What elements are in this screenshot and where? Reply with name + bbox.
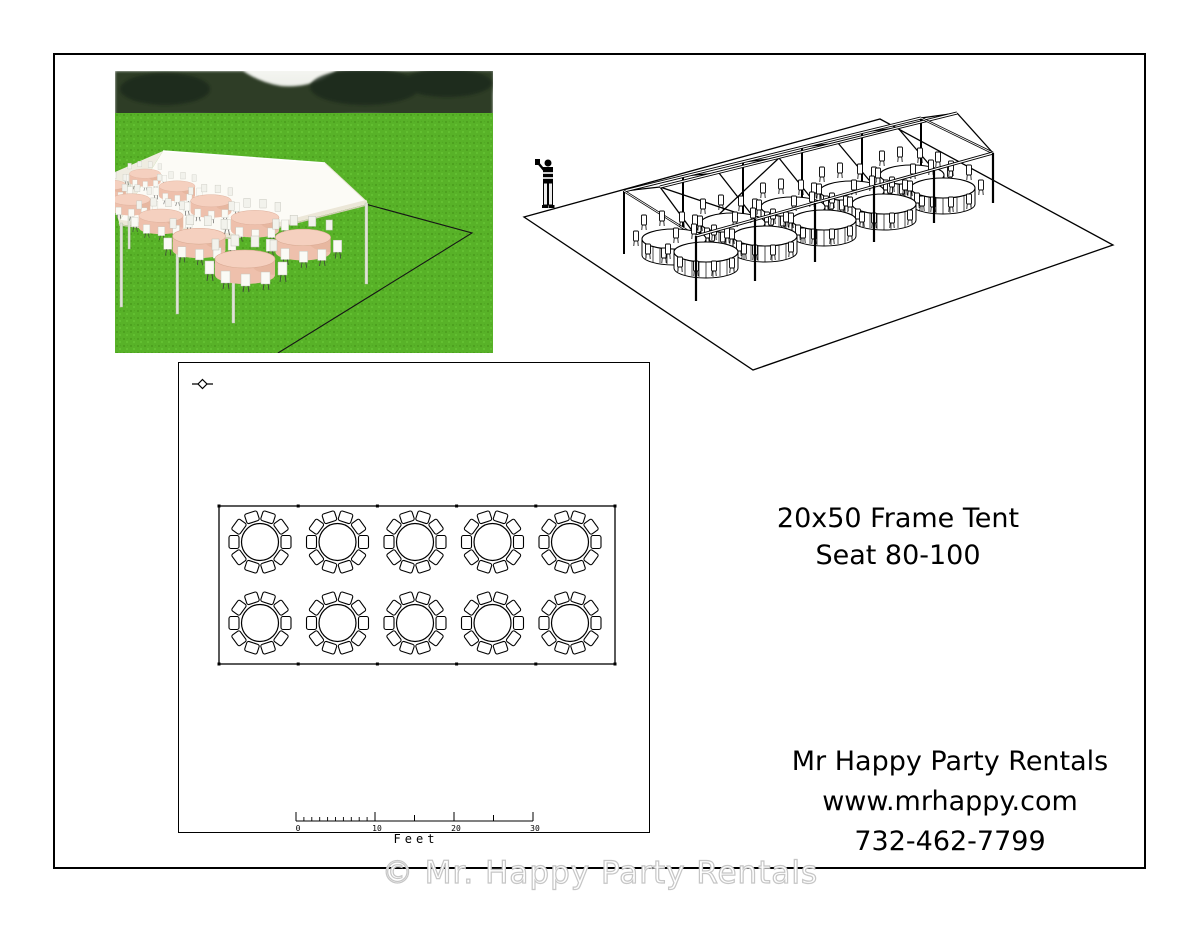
north-datum-icon	[192, 380, 213, 389]
title-block: 20x50 Frame Tent Seat 80-100	[740, 500, 1056, 574]
website-text: www.mrhappy.com	[780, 782, 1120, 822]
scale-labels: 0 10 20 30 Feet	[296, 824, 540, 846]
person-figure	[535, 159, 555, 208]
tent-wireframe-drawing	[520, 103, 1120, 375]
seating-text: Seat 80-100	[740, 537, 1056, 574]
company-name-text: Mr Happy Party Rentals	[780, 742, 1120, 782]
svg-text:20: 20	[451, 824, 461, 833]
watermark-text: © Mr. Happy Party Rentals	[260, 855, 940, 891]
tent-size-text: 20x50 Frame Tent	[740, 500, 1056, 537]
tent-layout-sheet: 0 10 20 30 Feet 20x50 Frame Tent Seat 80…	[0, 0, 1200, 927]
scale-unit-label: Feet	[394, 832, 439, 846]
scale-bar	[296, 812, 533, 821]
contact-block: Mr Happy Party Rentals www.mrhappy.com 7…	[780, 742, 1120, 862]
svg-text:0: 0	[296, 824, 301, 833]
tent-photo-render	[115, 71, 493, 353]
guest-tables	[634, 147, 984, 278]
svg-text:10: 10	[372, 824, 382, 833]
svg-text:30: 30	[530, 824, 540, 833]
floor-plan: 0 10 20 30 Feet	[178, 362, 650, 862]
